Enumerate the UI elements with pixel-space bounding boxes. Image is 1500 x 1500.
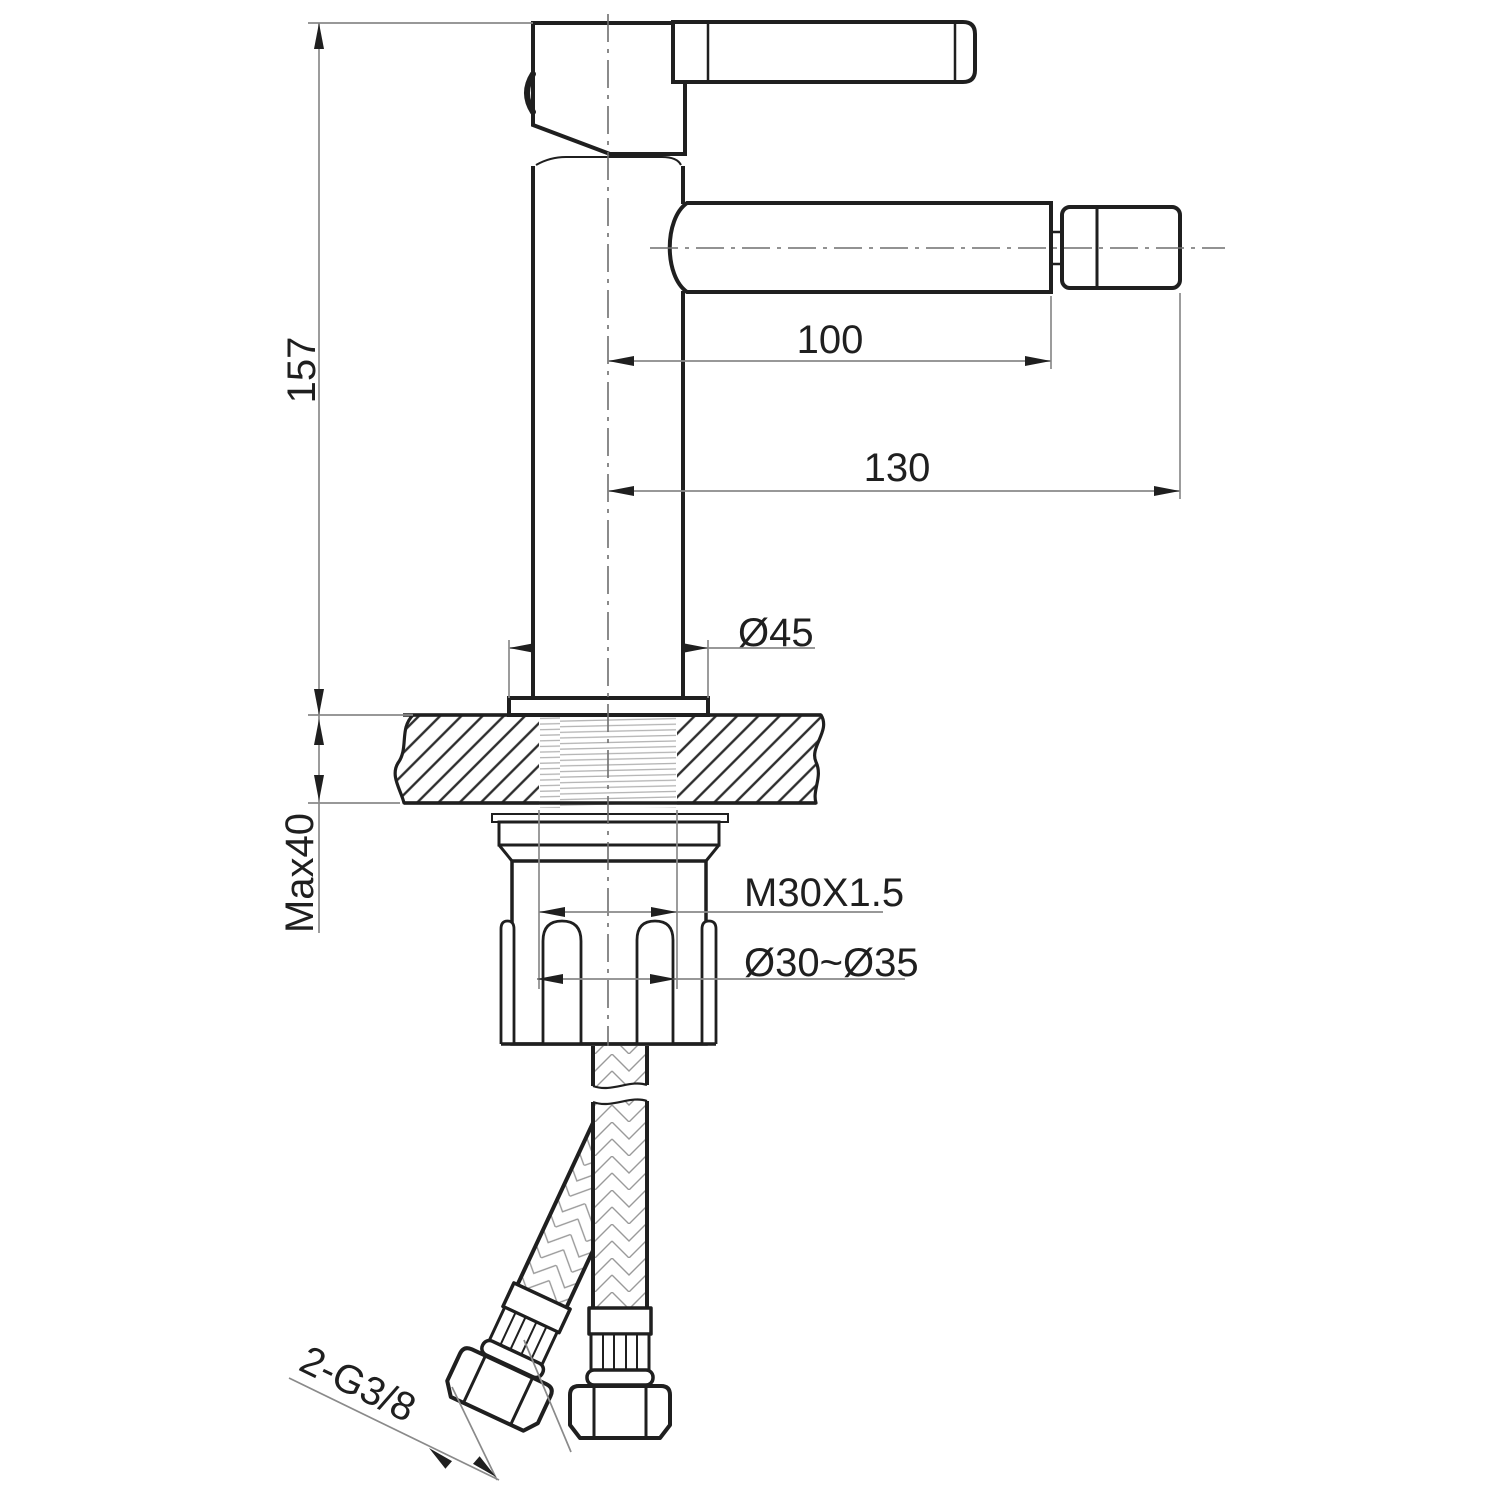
arrow-max40-bottom [314,775,324,801]
nut-chamfer [706,845,719,861]
nut-slot [702,921,716,1044]
label-hole-diameter: Ø30~Ø35 [744,941,919,985]
arrow-45-right [682,643,708,653]
braided-hose [593,1046,647,1088]
supply-hoses [442,1046,670,1438]
arrow-max40-top [314,719,324,745]
label-deck-thickness: Max40 [278,813,322,933]
arrow-157-top [314,23,324,49]
arrow-157-bottom [314,689,324,715]
lever-handle [673,22,975,82]
label-spout-reach: 100 [797,318,864,362]
braided-hose [593,1099,647,1308]
label-base-diameter: Ø45 [738,611,814,655]
technical-drawing-canvas: 157 Max40 100 130 Ø45 M30X1.5 Ø30~Ø35 2-… [0,0,1500,1500]
faucet-installation-drawing: 157 Max40 100 130 Ø45 M30X1.5 Ø30~Ø35 2-… [0,0,1500,1500]
nut-slot [501,921,514,1044]
label-hose-connection: 2-G3/8 [293,1338,422,1431]
label-total-height: 157 [280,337,324,404]
faucet [527,22,1180,714]
arrow-45-left [509,643,535,653]
nut-chamfer [499,845,512,861]
arrow-100-right [1025,356,1051,366]
cartridge-head [533,23,685,154]
label-overall-reach: 130 [864,446,931,490]
hose-fitting-vertical [570,1308,670,1438]
arrow-130-right [1154,486,1180,496]
label-mounting-thread: M30X1.5 [744,871,904,915]
nut-collar [499,822,719,845]
